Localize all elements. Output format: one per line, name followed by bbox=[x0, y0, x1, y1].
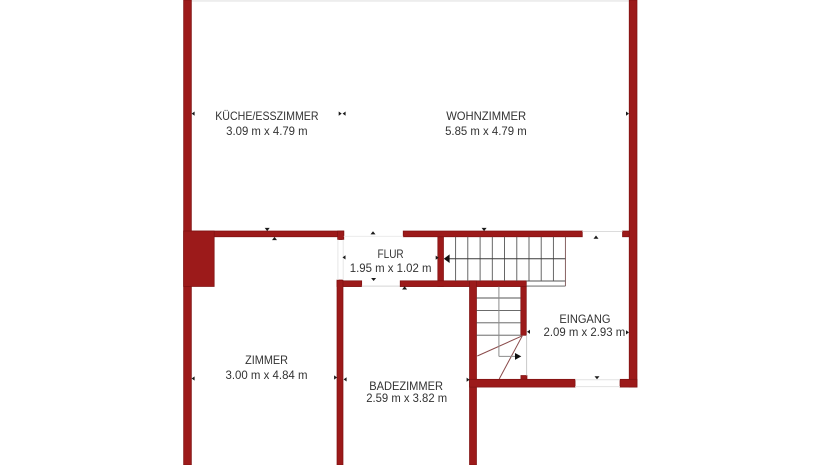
svg-text:1.95 m x 1.02 m: 1.95 m x 1.02 m bbox=[350, 261, 432, 275]
svg-text:2.59 m x 3.82 m: 2.59 m x 3.82 m bbox=[366, 391, 447, 405]
svg-text:EINGANG: EINGANG bbox=[559, 312, 610, 326]
svg-text:5.85 m x 4.79 m: 5.85 m x 4.79 m bbox=[445, 124, 527, 138]
svg-text:WOHNZIMMER: WOHNZIMMER bbox=[446, 109, 526, 123]
svg-text:KÜCHE/ESSZIMMER: KÜCHE/ESSZIMMER bbox=[215, 109, 319, 123]
svg-text:2.09 m x 2.93 m: 2.09 m x 2.93 m bbox=[544, 325, 626, 339]
svg-text:ZIMMER: ZIMMER bbox=[245, 353, 288, 367]
svg-text:3.00 m x 4.84 m: 3.00 m x 4.84 m bbox=[226, 368, 308, 382]
svg-text:3.09 m x 4.79 m: 3.09 m x 4.79 m bbox=[226, 124, 308, 138]
svg-text:FLUR: FLUR bbox=[378, 247, 404, 261]
